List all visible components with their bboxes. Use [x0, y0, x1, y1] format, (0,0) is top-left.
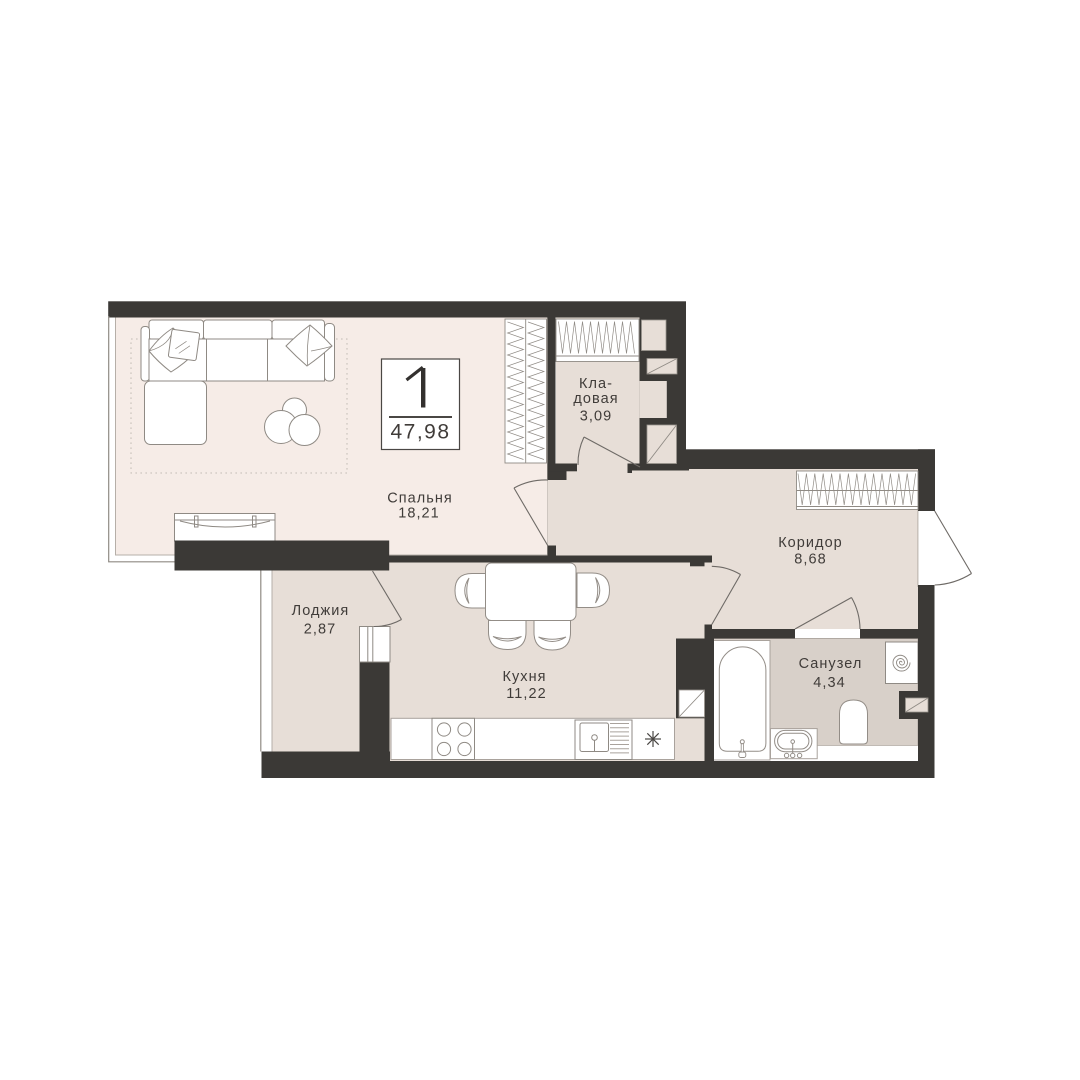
- svg-text:11,22: 11,22: [506, 686, 546, 702]
- svg-text:47,98: 47,98: [390, 421, 450, 444]
- svg-text:18,21: 18,21: [398, 506, 440, 522]
- svg-text:довая: довая: [573, 391, 618, 407]
- svg-text:8,68: 8,68: [794, 552, 826, 568]
- svg-text:Кухня: Кухня: [502, 669, 546, 685]
- svg-text:Лоджия: Лоджия: [292, 603, 350, 619]
- svg-text:4,34: 4,34: [813, 675, 845, 691]
- svg-text:Спальня: Спальня: [387, 491, 453, 507]
- svg-text:Кла-: Кла-: [579, 376, 613, 392]
- svg-text:Коридор: Коридор: [778, 535, 843, 551]
- svg-text:3,09: 3,09: [580, 409, 612, 425]
- svg-text:Санузел: Санузел: [799, 656, 863, 672]
- svg-text:2,87: 2,87: [304, 622, 336, 638]
